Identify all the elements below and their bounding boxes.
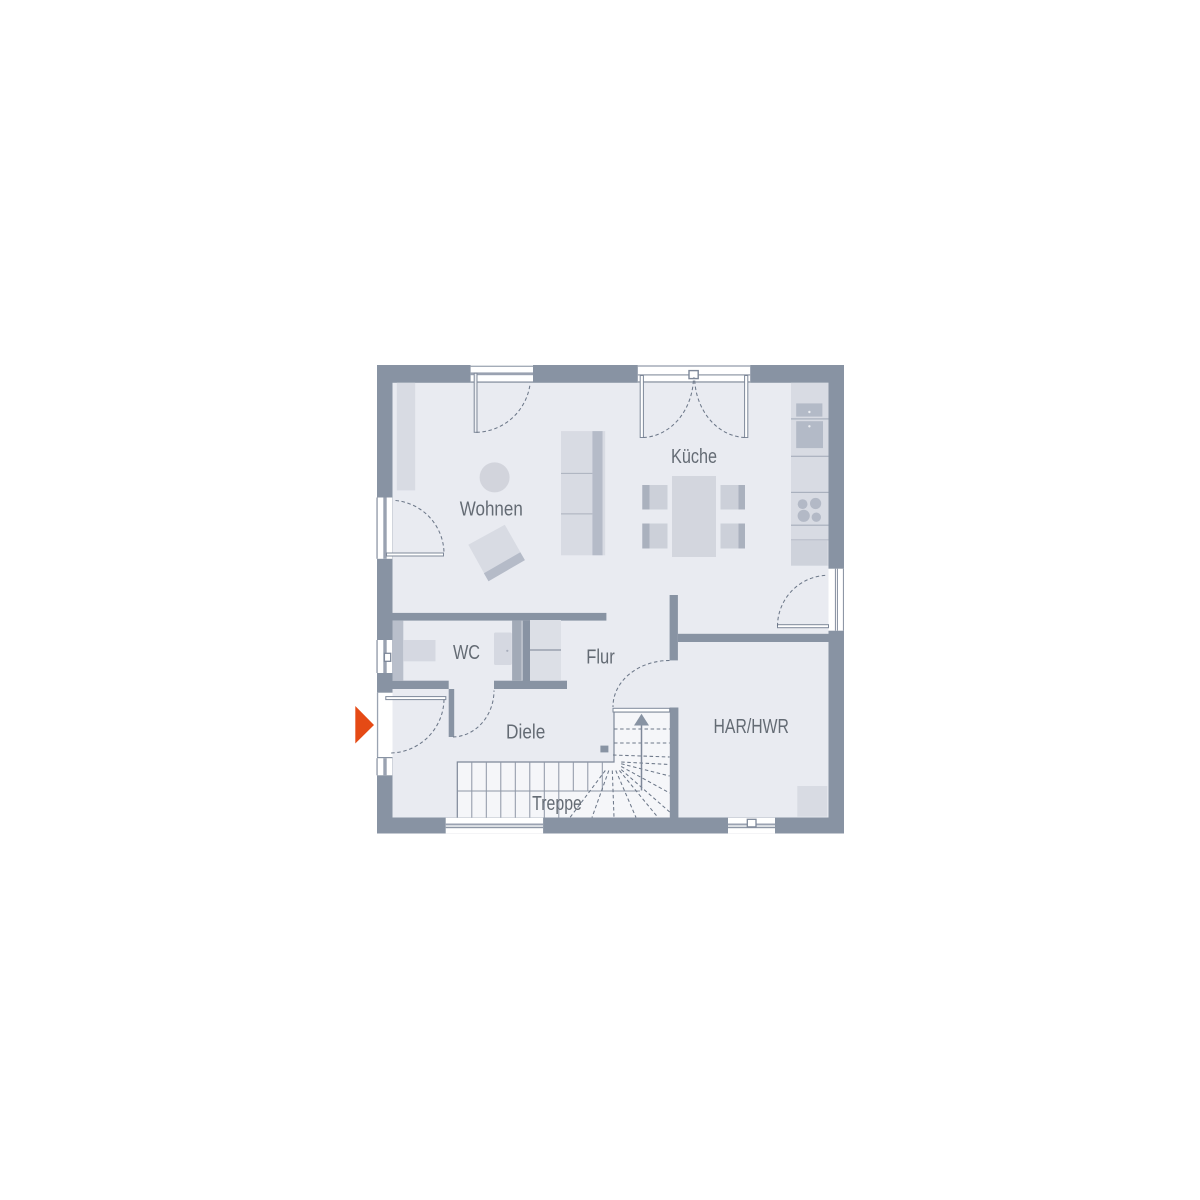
- svg-text:Küche: Küche: [671, 446, 717, 468]
- svg-text:Flur: Flur: [586, 646, 615, 668]
- svg-text:Wohnen: Wohnen: [460, 499, 523, 521]
- svg-text:WC: WC: [453, 642, 480, 664]
- svg-text:Diele: Diele: [506, 722, 545, 744]
- svg-text:HAR/HWR: HAR/HWR: [714, 716, 789, 738]
- svg-text:Treppe: Treppe: [532, 793, 582, 815]
